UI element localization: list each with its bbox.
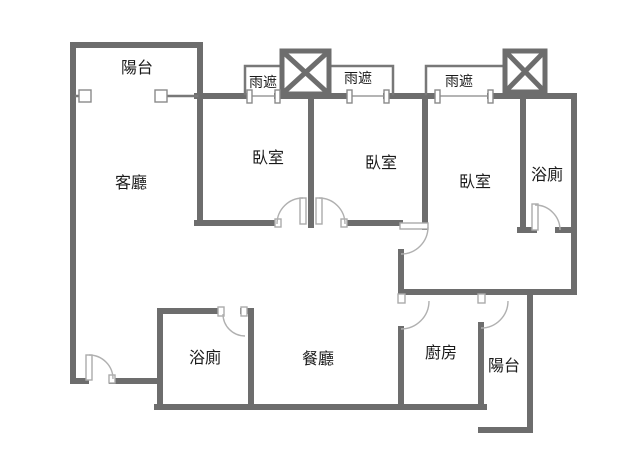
balcony-door-post xyxy=(155,90,167,102)
label-balcony-bottom: 陽台 xyxy=(488,357,520,375)
door-leaf-bedroom-3 xyxy=(400,223,428,229)
door-jamb-bedroom-1 xyxy=(275,219,281,227)
door-jamb-balcony-bottom xyxy=(478,294,485,303)
door-jamb-kitchen xyxy=(398,294,405,303)
label-rain-shade-mid: 雨遮 xyxy=(344,70,372,86)
window-jamb xyxy=(275,90,280,103)
label-rain-shade-right: 雨遮 xyxy=(445,73,473,89)
label-kitchen: 廚房 xyxy=(425,343,457,362)
door-arc-bedroom-3 xyxy=(401,227,428,254)
door-leaf-bathroom-top xyxy=(532,204,538,230)
labels-group: 陽台 雨遮 雨遮 雨遮 客廳 臥室 臥室 臥室 浴廁 浴廁 餐廳 廚房 陽台 xyxy=(115,59,563,375)
door-leaf-bedroom-1 xyxy=(300,198,306,224)
door-arc-bathroom-bottom xyxy=(223,314,245,336)
shaft-boxes-group xyxy=(282,51,545,94)
door-arc-balcony-bottom xyxy=(481,301,508,328)
label-bedroom-3: 臥室 xyxy=(459,173,491,191)
label-bedroom-2: 臥室 xyxy=(365,154,397,172)
door-leaf-bedroom-2 xyxy=(316,198,322,224)
door-arc-bathroom-top xyxy=(535,205,560,230)
window-jamb xyxy=(435,90,440,103)
door-jamb-living-room xyxy=(109,375,115,383)
label-bedroom-1: 臥室 xyxy=(252,149,284,167)
label-bathroom-bottom: 浴廁 xyxy=(189,348,221,367)
window-jamb xyxy=(247,90,252,103)
window-jamb xyxy=(347,90,352,103)
label-bathroom-top: 浴廁 xyxy=(531,165,563,184)
label-rain-shade-left: 雨遮 xyxy=(249,74,277,90)
door-jamb-bathroom-bottom xyxy=(241,307,247,316)
window-jamb xyxy=(488,90,493,103)
label-living-room: 客廳 xyxy=(115,173,147,192)
label-balcony-top: 陽台 xyxy=(121,59,153,77)
window-jamb xyxy=(384,90,389,103)
floorplan-canvas: 陽台 雨遮 雨遮 雨遮 客廳 臥室 臥室 臥室 浴廁 浴廁 餐廳 廚房 陽台 xyxy=(0,0,638,460)
door-arc-kitchen xyxy=(401,301,429,329)
balcony-door-post xyxy=(79,90,91,102)
label-dining-room: 餐廳 xyxy=(302,349,334,368)
door-jamb-bedroom-2 xyxy=(341,219,347,227)
floorplan-page: 陽台 雨遮 雨遮 雨遮 客廳 臥室 臥室 臥室 浴廁 浴廁 餐廳 廚房 陽台 xyxy=(0,0,638,460)
door-leaf-living-room xyxy=(86,355,92,380)
